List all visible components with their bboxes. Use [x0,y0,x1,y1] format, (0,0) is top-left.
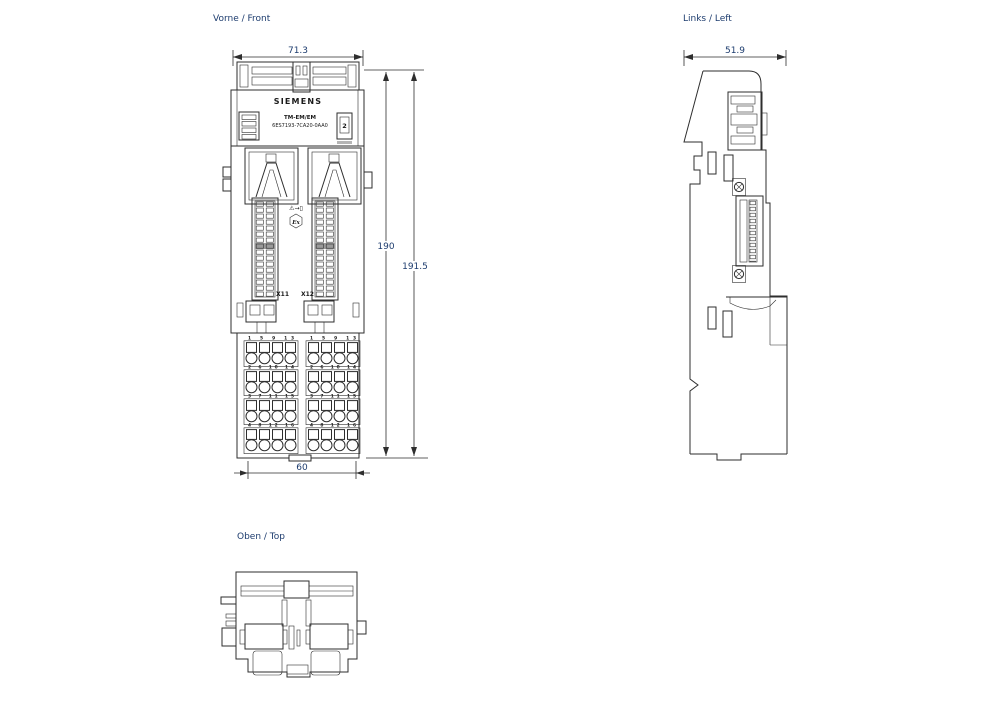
top-view-label: Oben / Top [237,532,285,542]
terminal-row [306,370,360,396]
top-view: Oben / Top [221,532,366,677]
dimensional-drawing: Vorne / Front 71.3 190 191.5 60 [0,0,1000,704]
left-depth-dimension: 51.9 [684,46,786,66]
top-pin [221,597,236,604]
front-height-rail-value: 190 [377,242,394,252]
front-bottom-width-dimension: 60 [234,461,370,479]
top-bracket [222,628,236,646]
module-slot-left [245,148,298,204]
slot-number-value: 2 [342,122,347,130]
front-height-dimensions: 190 191.5 [364,70,430,458]
side-slot [723,311,732,337]
front-bottom-width-value: 60 [296,463,308,473]
terminal-row [244,428,298,454]
top-pin [226,621,236,626]
terminal-row [244,341,298,367]
order-number-label: 6ES7193-7CA20-0AA0 [272,123,328,129]
terminal-row [306,399,360,425]
top-pin [226,614,236,618]
front-rating-plate: SIEMENS TM-EM/EM 6ES7193-7CA20-0AA0 2 [239,97,352,144]
terminal-row [244,399,298,425]
left-view: Links / Left 51.9 [683,14,787,460]
front-rail-section [237,62,359,92]
top-tab [357,621,366,634]
left-view-label: Links / Left [683,14,732,24]
connector-strip-x12 [312,198,338,300]
screw-icon [733,266,746,283]
coding-element-right [304,301,334,333]
coding-element-left [246,301,276,333]
connector-x12-label: X12 [301,291,314,298]
warning-manual-icon: ⚠→▯ [289,205,303,212]
terminal-row [244,370,298,396]
left-lower-details [726,297,787,345]
side-slot [708,152,716,174]
connector-x11-label: X11 [276,291,289,298]
side-tab [223,179,231,191]
ex-marking: Ex [291,220,300,226]
terminal-row [306,341,360,367]
terminal-row [306,428,360,454]
left-bus-connector [733,179,764,283]
side-tab [223,167,231,177]
side-tab [364,172,372,188]
brand-logo: SIEMENS [274,97,323,106]
front-height-total-value: 191.5 [402,262,428,272]
side-slot [724,155,733,181]
dimensional-drawing-page: Vorne / Front 71.3 190 191.5 60 [0,0,1000,704]
screw-icon [733,179,746,196]
connector-strip-x11 [252,198,278,300]
front-view-label: Vorne / Front [213,14,271,24]
side-slot [708,307,716,329]
top-inner-details [240,581,353,675]
terminal-block: 1 5 9 13 1 5 9 13 2 6 10 14 2 6 10 14 3 … [244,336,360,454]
left-depth-value: 51.9 [725,46,745,56]
front-width-value: 71.3 [288,46,308,56]
module-slot-right [308,148,361,204]
front-view: Vorne / Front 71.3 190 191.5 60 [213,14,430,479]
module-type-label: TM-EM/EM [284,115,316,121]
